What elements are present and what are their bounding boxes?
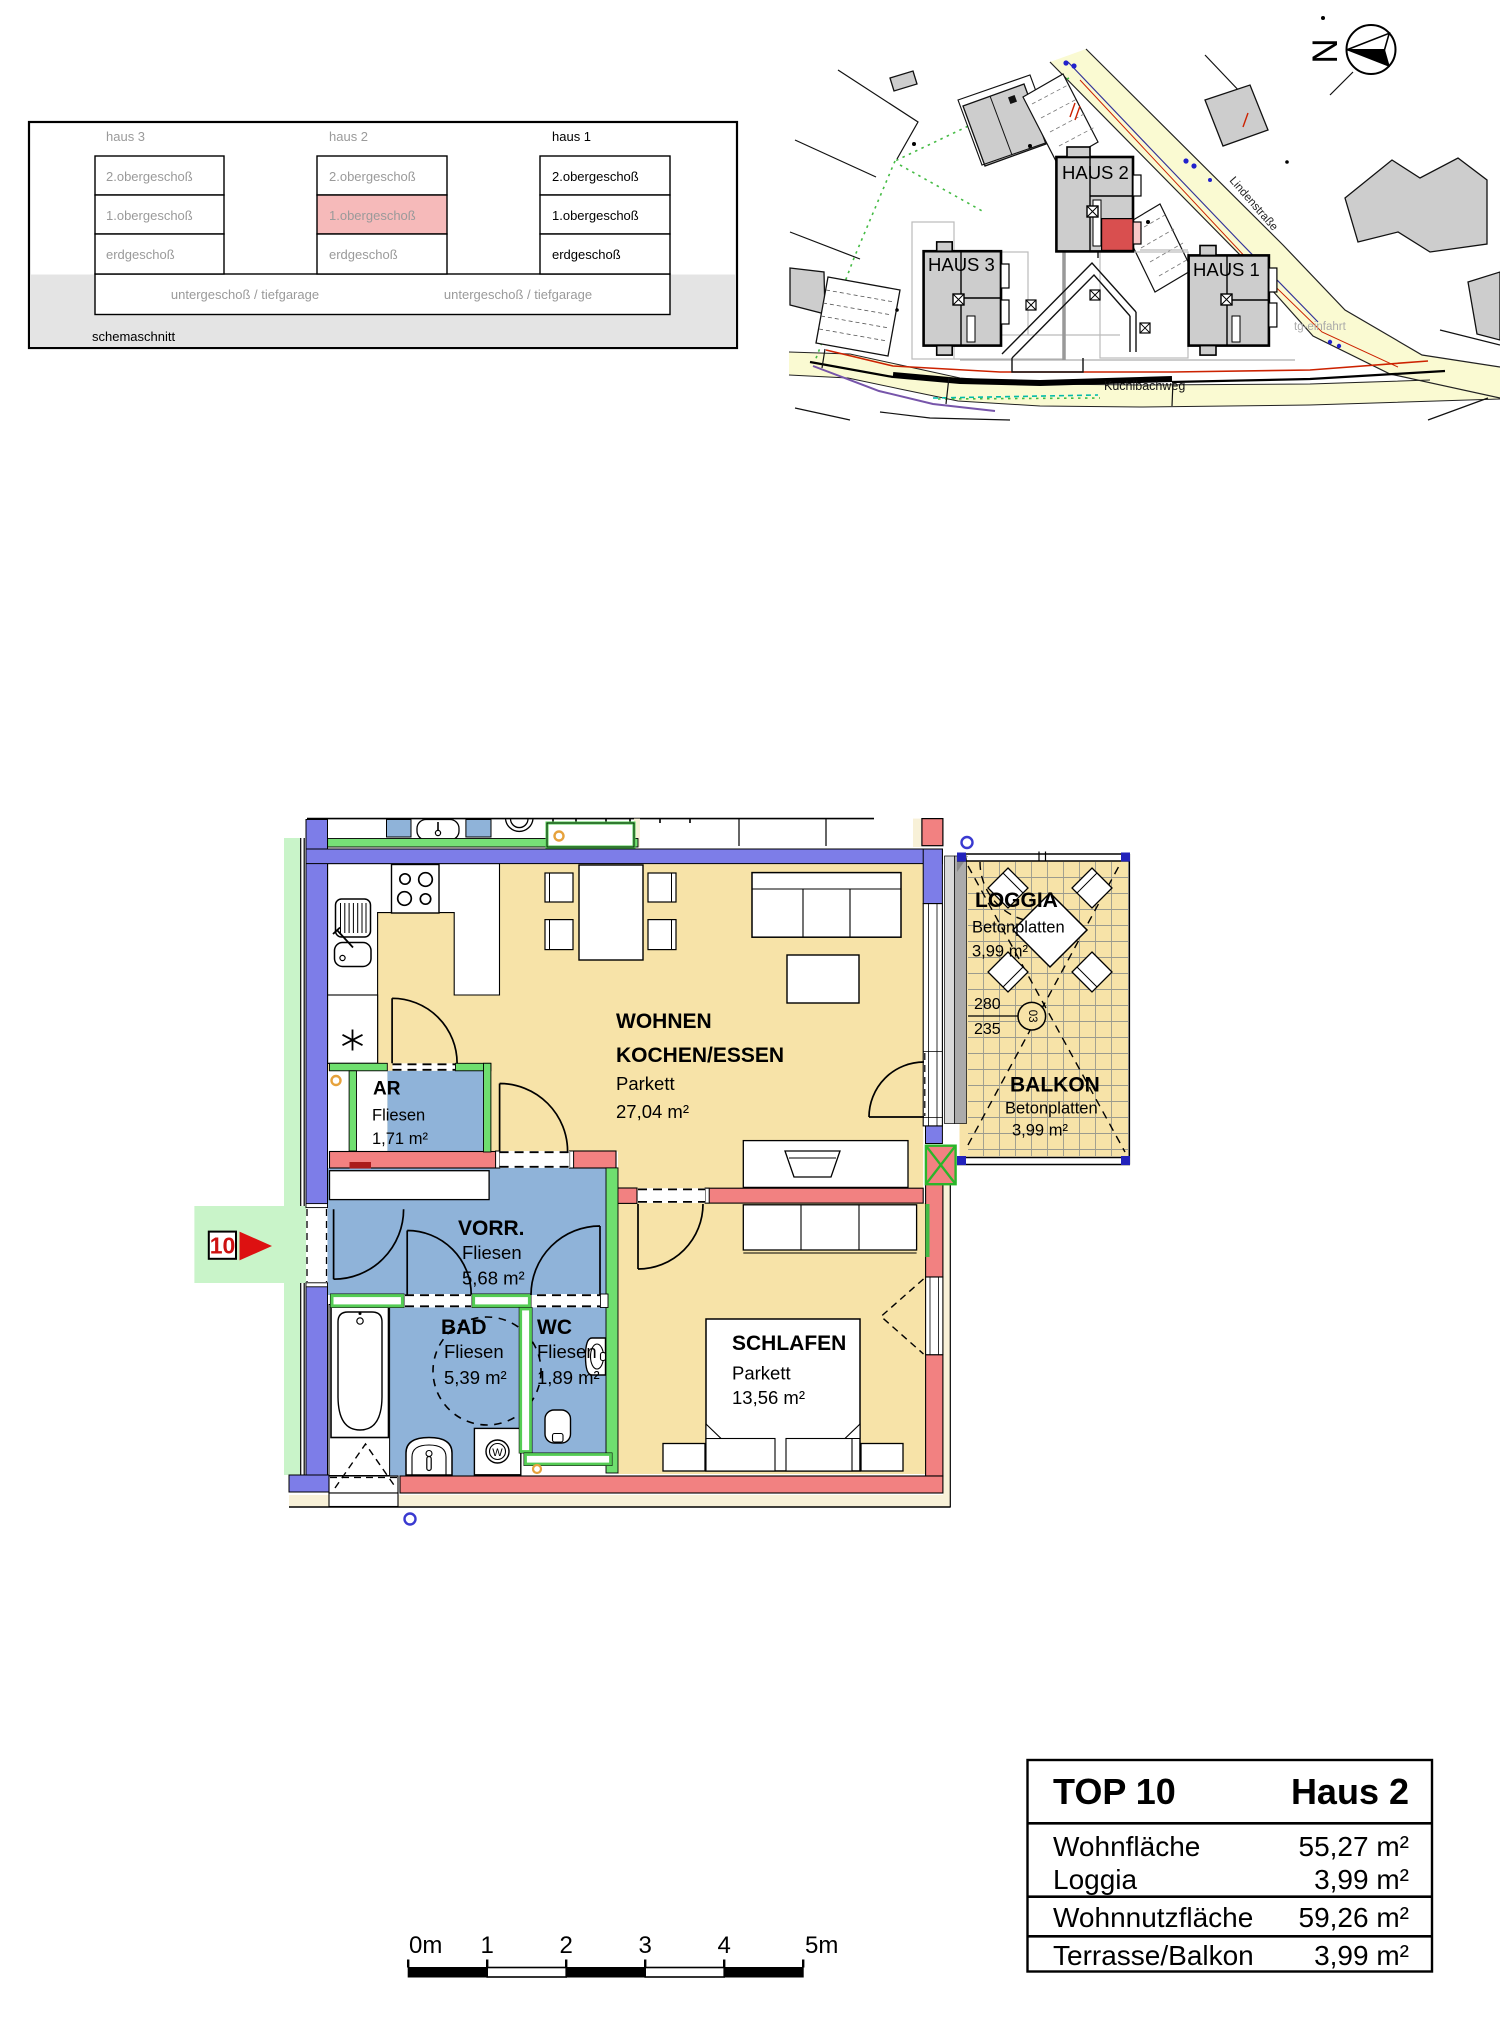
svg-text:Haus 2: Haus 2 xyxy=(1291,1771,1409,1812)
svg-text:untergeschoß / tiefgarage: untergeschoß / tiefgarage xyxy=(444,287,592,302)
svg-text:2: 2 xyxy=(560,1932,573,1959)
svg-text:1.obergeschoß: 1.obergeschoß xyxy=(329,208,416,223)
svg-text:5,39 m²: 5,39 m² xyxy=(444,1367,507,1388)
svg-text:235: 235 xyxy=(974,1021,1001,1038)
svg-text:Parkett: Parkett xyxy=(732,1363,791,1384)
svg-text:Fliesen: Fliesen xyxy=(537,1341,597,1362)
svg-text:SCHLAFEN: SCHLAFEN xyxy=(732,1332,846,1355)
svg-text:AR: AR xyxy=(373,1079,401,1100)
svg-text:59,26 m²: 59,26 m² xyxy=(1299,1902,1410,1933)
svg-text:55,27 m²: 55,27 m² xyxy=(1299,1831,1410,1862)
svg-text:LOGGIA: LOGGIA xyxy=(975,889,1058,912)
svg-text:haus 3: haus 3 xyxy=(106,129,145,144)
svg-text:Wohnnutzfläche: Wohnnutzfläche xyxy=(1053,1902,1253,1933)
svg-text:TOP 10: TOP 10 xyxy=(1053,1771,1176,1812)
svg-text:HAUS 3: HAUS 3 xyxy=(928,254,995,275)
svg-text:Kuchlbachweg: Kuchlbachweg xyxy=(1104,379,1185,393)
svg-text:erdgeschoß: erdgeschoß xyxy=(552,247,621,262)
svg-text:Fliesen: Fliesen xyxy=(372,1107,425,1125)
svg-text:5,68 m²: 5,68 m² xyxy=(462,1268,525,1289)
svg-text:4: 4 xyxy=(718,1932,731,1959)
svg-text:280: 280 xyxy=(974,996,1001,1013)
svg-text:1: 1 xyxy=(481,1932,494,1959)
svg-text:5m: 5m xyxy=(805,1932,838,1959)
svg-text:2.obergeschoß: 2.obergeschoß xyxy=(552,169,639,184)
svg-text:27,04 m²: 27,04 m² xyxy=(616,1101,689,1122)
svg-text:13,56 m²: 13,56 m² xyxy=(732,1387,805,1408)
svg-text:Betonplatten: Betonplatten xyxy=(972,919,1065,937)
svg-text:Betonplatten: Betonplatten xyxy=(1005,1100,1098,1118)
svg-text:3,99 m²: 3,99 m² xyxy=(972,943,1028,961)
svg-text:HAUS 1: HAUS 1 xyxy=(1193,259,1260,280)
svg-text:VORR.: VORR. xyxy=(458,1217,525,1240)
svg-text:1.obergeschoß: 1.obergeschoß xyxy=(552,208,639,223)
svg-text:Parkett: Parkett xyxy=(616,1073,675,1094)
svg-text:2.obergeschoß: 2.obergeschoß xyxy=(329,169,416,184)
svg-text:1.obergeschoß: 1.obergeschoß xyxy=(106,208,193,223)
svg-text:03: 03 xyxy=(1026,1010,1038,1023)
svg-text:3,99 m²: 3,99 m² xyxy=(1314,1940,1409,1971)
svg-text:BALKON: BALKON xyxy=(1010,1074,1100,1097)
svg-text:3: 3 xyxy=(639,1932,652,1959)
svg-text:Terrasse/Balkon: Terrasse/Balkon xyxy=(1053,1940,1254,1971)
svg-text:erdgeschoß: erdgeschoß xyxy=(106,247,175,262)
svg-text:1,89 m²: 1,89 m² xyxy=(537,1367,600,1388)
svg-text:untergeschoß / tiefgarage: untergeschoß / tiefgarage xyxy=(171,287,319,302)
svg-text:haus 2: haus 2 xyxy=(329,129,368,144)
svg-text:Fliesen: Fliesen xyxy=(462,1242,522,1263)
svg-text:1,71 m²: 1,71 m² xyxy=(372,1130,428,1148)
svg-text:0m: 0m xyxy=(409,1932,442,1959)
svg-text:3,99 m²: 3,99 m² xyxy=(1012,1122,1068,1140)
svg-text:N: N xyxy=(1305,38,1344,63)
svg-text:WC: WC xyxy=(537,1316,572,1339)
svg-text:BAD: BAD xyxy=(441,1316,487,1339)
svg-text:tg-einfahrt: tg-einfahrt xyxy=(1294,321,1347,333)
svg-text:3,99 m²: 3,99 m² xyxy=(1314,1864,1409,1895)
svg-text:KOCHEN/ESSEN: KOCHEN/ESSEN xyxy=(616,1044,784,1067)
svg-text:HAUS 2: HAUS 2 xyxy=(1062,162,1129,183)
svg-text:schemaschnitt: schemaschnitt xyxy=(92,329,175,344)
svg-text:haus 1: haus 1 xyxy=(552,129,591,144)
svg-text:Wohnfläche: Wohnfläche xyxy=(1053,1831,1200,1862)
svg-text:W: W xyxy=(492,1447,503,1459)
svg-text:Loggia: Loggia xyxy=(1053,1864,1138,1895)
svg-text:erdgeschoß: erdgeschoß xyxy=(329,247,398,262)
svg-text:10: 10 xyxy=(210,1233,236,1259)
svg-text:2.obergeschoß: 2.obergeschoß xyxy=(106,169,193,184)
svg-text:Fliesen: Fliesen xyxy=(444,1341,504,1362)
svg-text:WOHNEN: WOHNEN xyxy=(616,1010,712,1033)
